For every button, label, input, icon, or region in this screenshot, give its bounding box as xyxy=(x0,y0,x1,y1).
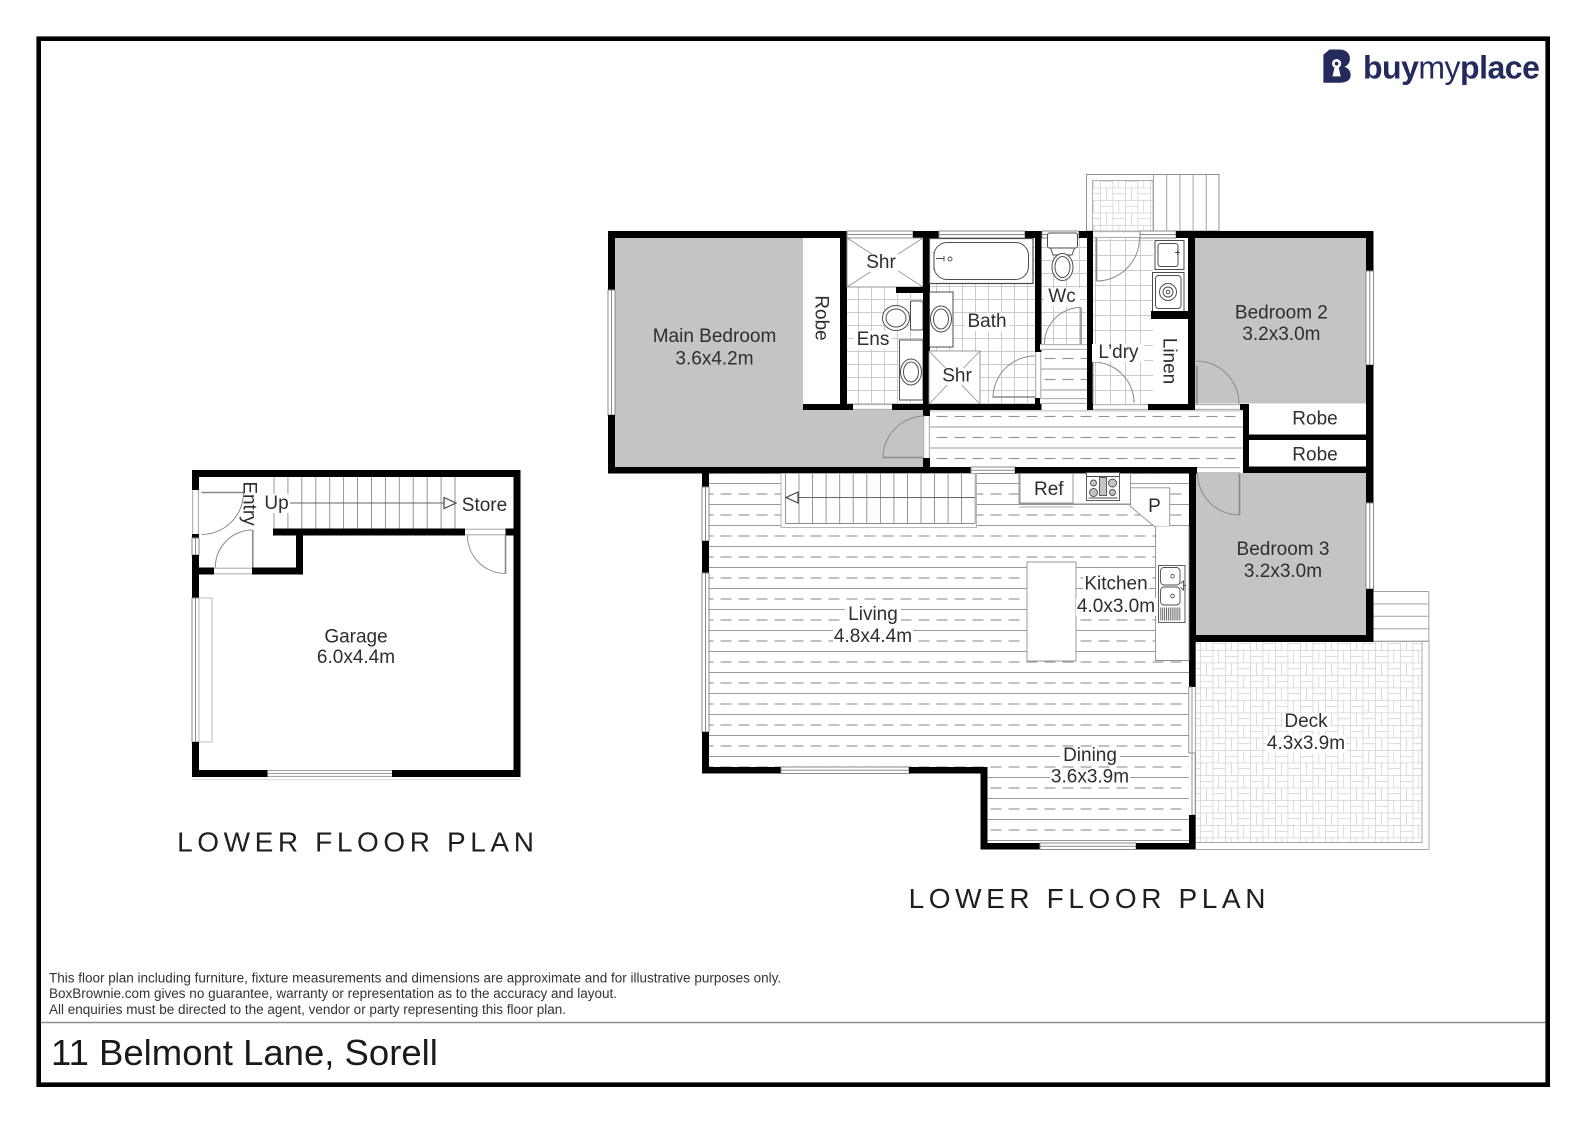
svg-text:Main Bedroom: Main Bedroom xyxy=(653,326,777,347)
svg-text:3.2x3.0m: 3.2x3.0m xyxy=(1242,324,1320,345)
svg-text:Dining: Dining xyxy=(1063,745,1117,766)
svg-text:Living: Living xyxy=(848,604,898,625)
svg-text:Store: Store xyxy=(462,495,507,516)
svg-text:Wc: Wc xyxy=(1048,286,1075,307)
svg-text:4.0x3.0m: 4.0x3.0m xyxy=(1077,596,1155,617)
svg-text:Shr: Shr xyxy=(866,252,896,273)
svg-text:P: P xyxy=(1148,496,1161,517)
svg-text:Entry: Entry xyxy=(239,481,260,526)
svg-text:6.0x4.4m: 6.0x4.4m xyxy=(317,647,395,668)
svg-text:11 Belmont Lane, Sorell: 11 Belmont Lane, Sorell xyxy=(51,1032,438,1073)
svg-text:Shr: Shr xyxy=(942,366,972,387)
svg-text:L’dry: L’dry xyxy=(1098,342,1139,363)
svg-text:Bedroom 2: Bedroom 2 xyxy=(1235,302,1328,323)
svg-text:3.2x3.0m: 3.2x3.0m xyxy=(1244,561,1322,582)
svg-text:Bath: Bath xyxy=(967,311,1006,332)
svg-text:This floor plan including furn: This floor plan including furniture, fix… xyxy=(49,971,781,986)
svg-text:Robe: Robe xyxy=(1292,409,1337,430)
svg-text:4.3x3.9m: 4.3x3.9m xyxy=(1267,733,1345,754)
svg-text:Robe: Robe xyxy=(811,295,832,340)
svg-text:4.8x4.4m: 4.8x4.4m xyxy=(834,626,912,647)
svg-text:Deck: Deck xyxy=(1284,711,1328,732)
svg-text:Kitchen: Kitchen xyxy=(1084,574,1147,595)
svg-text:3.6x4.2m: 3.6x4.2m xyxy=(675,348,753,369)
svg-text:LOWER FLOOR PLAN: LOWER FLOOR PLAN xyxy=(909,883,1270,914)
svg-text:All enquiries must be directed: All enquiries must be directed to the ag… xyxy=(49,1002,566,1017)
svg-text:Ens: Ens xyxy=(857,329,890,350)
svg-text:Robe: Robe xyxy=(1292,444,1337,465)
svg-text:buymyplace: buymyplace xyxy=(1363,50,1539,86)
svg-text:Garage: Garage xyxy=(324,627,387,648)
svg-text:Ref: Ref xyxy=(1034,479,1064,500)
svg-text:BoxBrownie.com gives no guaran: BoxBrownie.com gives no guarantee, warra… xyxy=(49,986,617,1001)
svg-text:LOWER FLOOR PLAN: LOWER FLOOR PLAN xyxy=(177,827,538,858)
svg-text:3.6x3.9m: 3.6x3.9m xyxy=(1051,767,1129,788)
svg-text:Linen: Linen xyxy=(1159,338,1180,385)
svg-text:Bedroom 3: Bedroom 3 xyxy=(1237,539,1330,560)
svg-text:Up: Up xyxy=(264,493,288,514)
